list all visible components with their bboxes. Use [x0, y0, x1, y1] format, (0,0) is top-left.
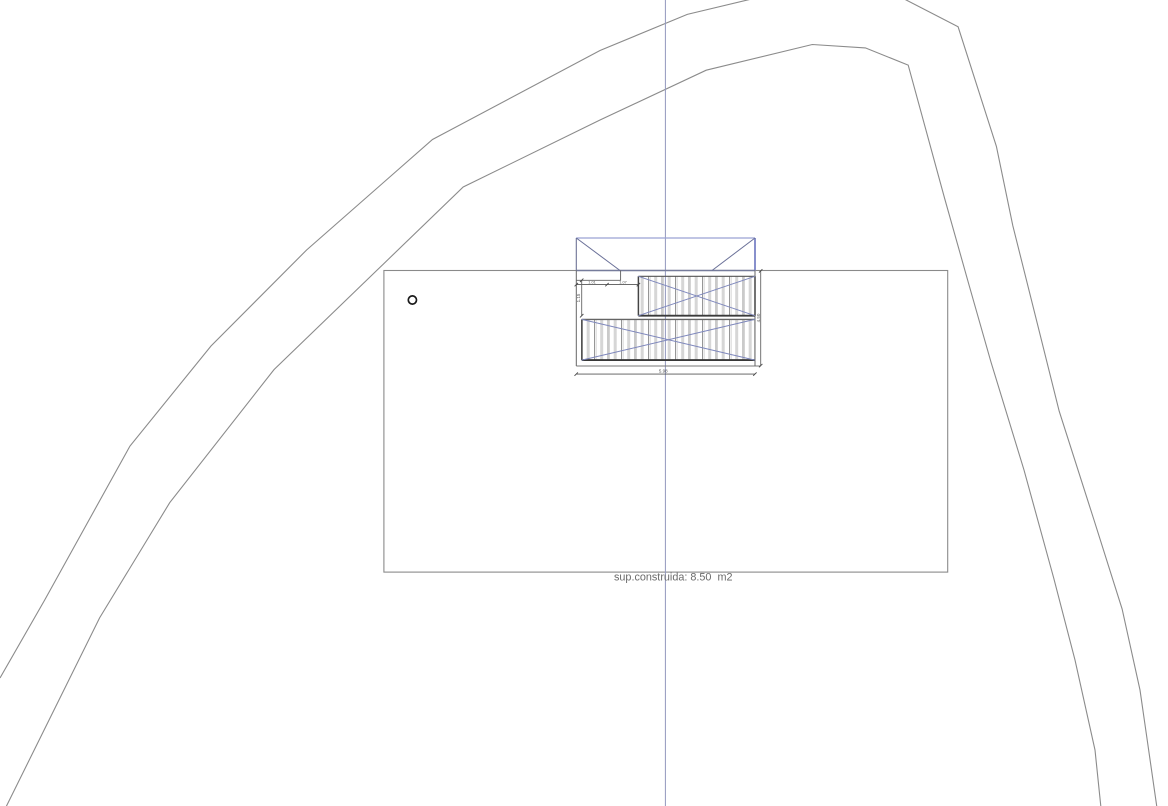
svg-text:1.15: 1.15 [576, 293, 581, 302]
svg-text:sup.construida: 8.50 m2: sup.construida: 8.50 m2 [614, 572, 733, 584]
svg-text:5.98: 5.98 [659, 368, 668, 373]
svg-text:1.07: 1.07 [619, 280, 626, 284]
svg-text:1.01: 1.01 [588, 280, 595, 284]
svg-text:4.50: 4.50 [756, 313, 761, 322]
